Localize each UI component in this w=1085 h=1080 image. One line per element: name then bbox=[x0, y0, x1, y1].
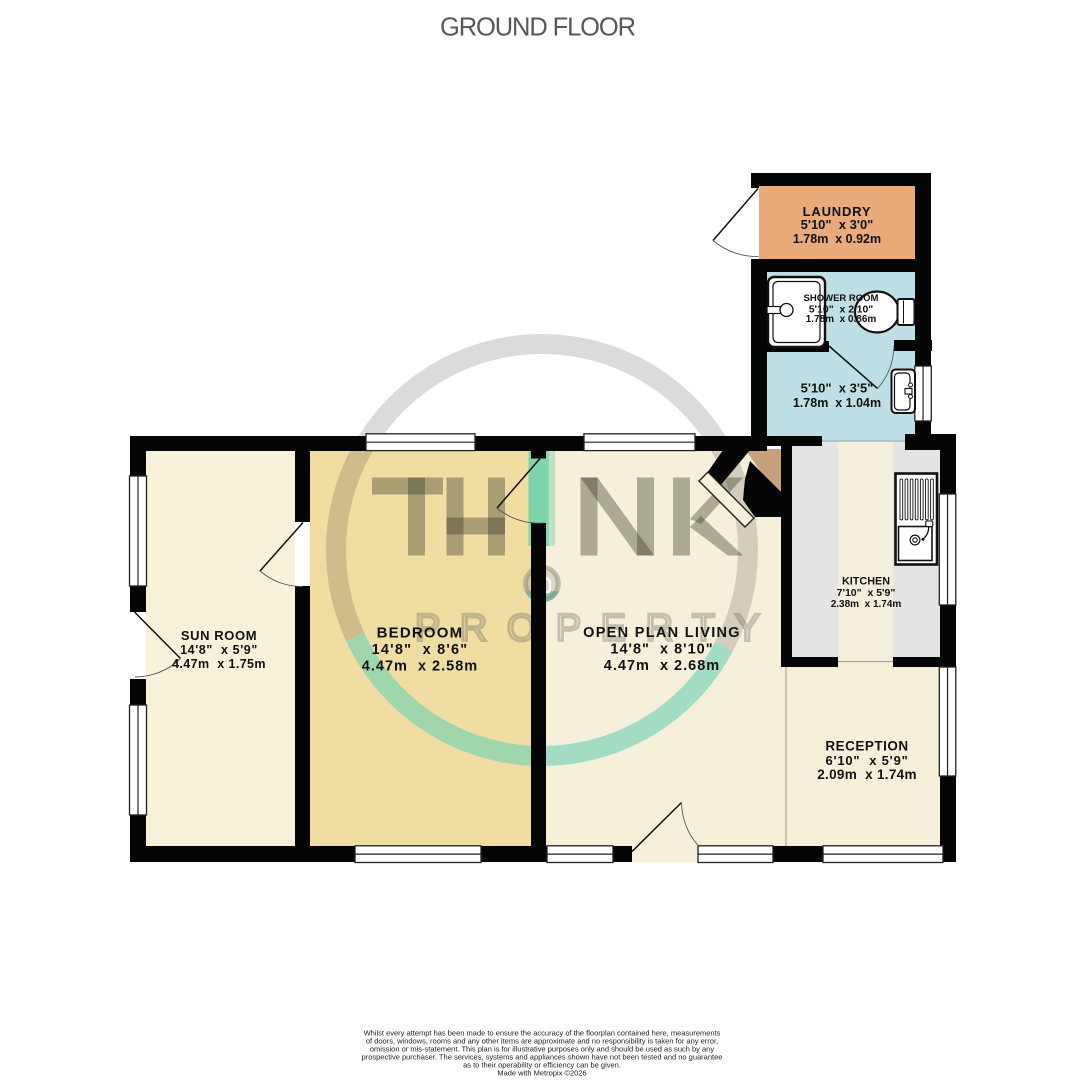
svg-text:Made with Metropix ©2026: Made with Metropix ©2026 bbox=[497, 1069, 586, 1078]
svg-text:2.38m x 1.74m: 2.38m x 1.74m bbox=[831, 599, 902, 610]
svg-text:5'10" x 3'5": 5'10" x 3'5" bbox=[801, 381, 874, 396]
svg-text:OPEN PLAN LIVING: OPEN PLAN LIVING bbox=[583, 625, 741, 641]
svg-text:1.78m x 0.86m: 1.78m x 0.86m bbox=[806, 314, 877, 325]
svg-text:KITCHEN: KITCHEN bbox=[842, 576, 890, 588]
svg-text:4.47m x 2.58m: 4.47m x 2.58m bbox=[362, 659, 478, 675]
svg-text:SHOWER ROOM: SHOWER ROOM bbox=[804, 293, 879, 304]
svg-text:RECEPTION: RECEPTION bbox=[825, 739, 908, 754]
svg-text:14'8" x 5'9": 14'8" x 5'9" bbox=[180, 643, 258, 657]
svg-text:BEDROOM: BEDROOM bbox=[377, 625, 464, 642]
svg-text:4.47m x 1.75m: 4.47m x 1.75m bbox=[172, 657, 266, 671]
svg-text:14'8" x 8'6": 14'8" x 8'6" bbox=[372, 642, 469, 658]
svg-text:5'10" x 3'0": 5'10" x 3'0" bbox=[801, 217, 874, 232]
svg-text:2.09m x 1.74m: 2.09m x 1.74m bbox=[817, 767, 917, 782]
svg-text:6'10" x 5'9": 6'10" x 5'9" bbox=[825, 753, 908, 768]
svg-text:4.47m x 2.68m: 4.47m x 2.68m bbox=[604, 658, 720, 674]
svg-text:14'8" x 8'10": 14'8" x 8'10" bbox=[610, 642, 713, 658]
svg-text:GROUND FLOOR: GROUND FLOOR bbox=[440, 14, 636, 42]
svg-text:1.78m x 0.92m: 1.78m x 0.92m bbox=[793, 232, 881, 246]
svg-text:1.78m x 1.04m: 1.78m x 1.04m bbox=[793, 396, 881, 410]
svg-text:SUN ROOM: SUN ROOM bbox=[181, 628, 257, 643]
svg-text:7'10" x 5'9": 7'10" x 5'9" bbox=[837, 587, 896, 599]
